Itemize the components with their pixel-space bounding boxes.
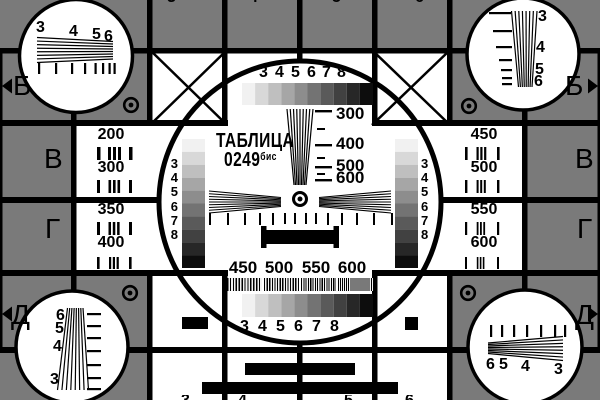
- resolution-cell-label: 450: [471, 127, 498, 143]
- resolution-cell-label: 500: [471, 160, 498, 176]
- staircase-label: 7: [158, 214, 178, 227]
- partial-digit: 4: [249, 0, 258, 6]
- corner-wedge-label: 5: [55, 321, 64, 337]
- staircase-label: 6: [158, 200, 178, 213]
- burst-label: 550: [302, 259, 330, 276]
- grayscale-label: 8: [330, 319, 339, 335]
- frequency-label: 400: [336, 135, 364, 152]
- row-letter-g-left: Г: [45, 215, 60, 243]
- corner-wedge-label: 3: [50, 372, 59, 388]
- grayscale-label: 7: [312, 319, 321, 335]
- staircase-label: 5: [421, 185, 428, 198]
- burst-label: 500: [265, 259, 293, 276]
- staircase-label: 4: [421, 171, 428, 184]
- registration-target-top-left: [124, 98, 138, 112]
- staircase-label: 3: [421, 157, 428, 170]
- card-title: ТАБЛИЦА: [216, 131, 294, 151]
- corner-wedge-label: 4: [53, 339, 62, 355]
- grayscale-label: 8: [337, 65, 346, 81]
- grayscale-label: 5: [276, 319, 285, 335]
- grayscale-label: 3: [240, 319, 249, 335]
- row-letter-v-left: В: [44, 145, 63, 173]
- resolution-cell-label: 400: [98, 235, 125, 251]
- grayscale-label: 6: [294, 319, 303, 335]
- resolution-cell-label: 350: [98, 202, 125, 218]
- corner-wedge-label: 3: [36, 20, 45, 36]
- frequency-label: 600: [336, 169, 364, 186]
- partial-digit: 4: [238, 395, 247, 400]
- card-code-number: 0249: [224, 149, 260, 171]
- staircase-label: 8: [421, 228, 428, 241]
- corner-circle-bottom-left: [16, 291, 128, 400]
- row-letter-v-right: В: [575, 145, 594, 173]
- corner-wedge-label: 4: [521, 359, 530, 375]
- row-letter-d-right: Д: [575, 301, 594, 329]
- row-letter-b-right: Б: [565, 72, 583, 100]
- burst-strip-550: [301, 278, 336, 291]
- resolution-cell-label: 550: [471, 202, 498, 218]
- grayscale-label: 6: [307, 65, 316, 81]
- partial-digit: 6: [415, 0, 424, 6]
- burst-label: 450: [229, 259, 257, 276]
- staircase-label: 4: [158, 171, 178, 184]
- grayscale-wedge-bottom: [242, 294, 373, 317]
- corner-wedge-label: 5: [499, 357, 508, 373]
- test-card-graphics: [0, 0, 600, 400]
- registration-target-top-right: [462, 99, 476, 113]
- registration-target-bottom-left: [123, 286, 137, 300]
- partial-digit: 3: [181, 395, 190, 400]
- corner-wedge-label: 3: [554, 362, 563, 378]
- corner-wedge-label: 5: [92, 27, 101, 43]
- corner-wedge-label: 6: [104, 29, 113, 45]
- partial-digit: 6: [405, 395, 414, 400]
- row-letter-g-right: Г: [577, 215, 592, 243]
- staircase-label: 7: [421, 214, 428, 227]
- grayscale-staircase-left: [182, 139, 205, 268]
- partial-digit: 5: [344, 395, 353, 400]
- corner-wedge-label: 6: [486, 357, 495, 373]
- corner-wedge-label: 4: [536, 40, 545, 56]
- arrow-left-b-icon: [2, 79, 12, 94]
- burst-strip-600: [338, 278, 373, 291]
- grayscale-label: 4: [258, 319, 267, 335]
- test-card: ТАБЛИЦА 0249бис 3 4 5 6 7 8 3 4 5 6 7 8 …: [0, 0, 600, 400]
- card-code: 0249бис: [224, 150, 277, 170]
- resolution-cell-label: 300: [98, 160, 125, 176]
- burst-strip-500: [264, 278, 299, 291]
- registration-target-bottom-right: [461, 286, 475, 300]
- staircase-label: 5: [158, 185, 178, 198]
- card-code-suffix: бис: [260, 151, 277, 163]
- grayscale-label: 4: [275, 65, 284, 81]
- frequency-label: 300: [336, 105, 364, 122]
- burst-strip-450: [227, 278, 262, 291]
- staircase-label: 6: [421, 200, 428, 213]
- partial-digit: 5: [332, 0, 341, 6]
- resolution-cell-label: 200: [98, 127, 125, 143]
- arrow-right-b-icon: [588, 79, 598, 94]
- grayscale-label: 7: [322, 65, 331, 81]
- burst-label: 600: [338, 259, 366, 276]
- resolution-cell-label: 600: [471, 235, 498, 251]
- corner-wedge-label: 4: [69, 24, 78, 40]
- grayscale-label: 3: [259, 65, 268, 81]
- corner-wedge-label: 6: [534, 74, 543, 90]
- partial-digit: 3: [167, 0, 176, 6]
- corner-circle-top-left: [20, 0, 133, 113]
- row-letter-d-left: Д: [11, 301, 30, 329]
- row-letter-b-left: Б: [13, 72, 31, 100]
- grayscale-staircase-right: [395, 139, 418, 268]
- staircase-label: 8: [158, 228, 178, 241]
- corner-wedge-label: 3: [538, 9, 547, 25]
- staircase-label: 3: [158, 157, 178, 170]
- grayscale-label: 5: [291, 65, 300, 81]
- grayscale-wedge-top: [242, 83, 373, 105]
